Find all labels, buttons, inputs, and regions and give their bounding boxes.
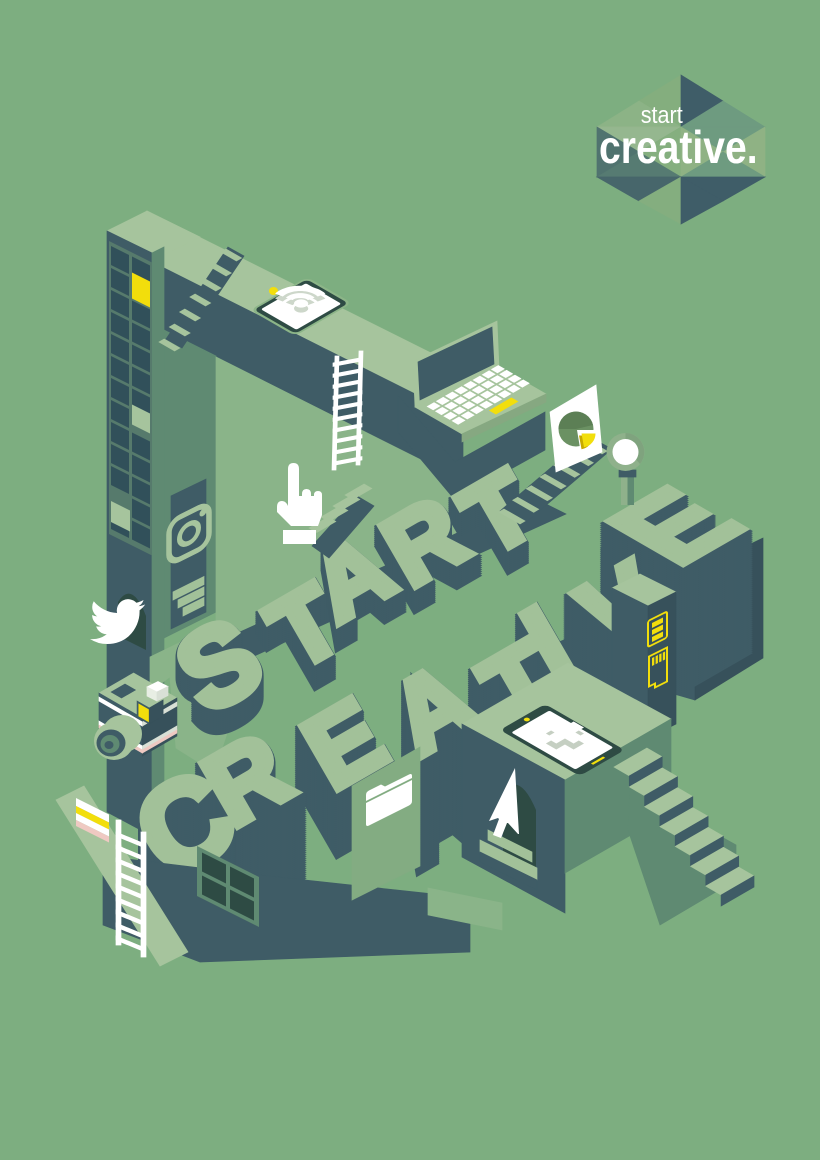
svg-text:creative.: creative. bbox=[599, 122, 758, 174]
